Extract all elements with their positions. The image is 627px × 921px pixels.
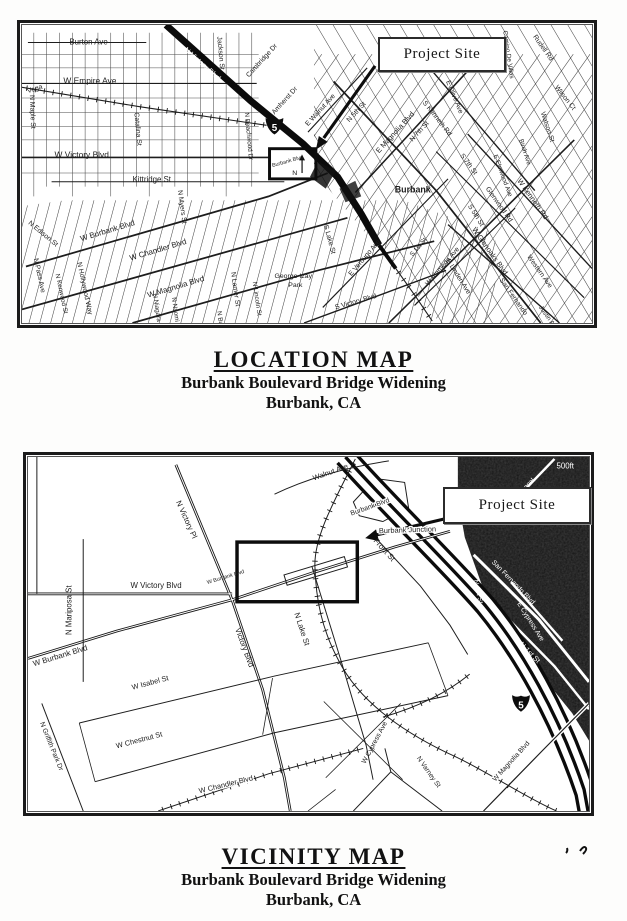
project-site-callout: Project Site: [378, 37, 506, 72]
street-label: N Edison St: [27, 220, 60, 249]
street-label: N Beachwood Dr: [243, 112, 254, 161]
street-label: E Verdugo Ave: [348, 238, 383, 277]
location-map-figure: 5NBurton AveW Empire AveW Victory BlvdKi…: [17, 20, 597, 328]
location-map-city: Burbank, CA: [0, 393, 627, 413]
street-label: W Victory Blvd: [131, 581, 182, 590]
street-label: W Magnolia Blvd: [146, 274, 205, 300]
street-labels-layer: Burton AveW Empire AveW Victory BlvdKitt…: [26, 30, 576, 323]
street-label: Watson St: [539, 111, 555, 143]
vicinity-map-figure: 5Walnut AveN Victory PlW Victory BlvdN M…: [23, 452, 594, 816]
scan-ink-mark: [560, 840, 596, 858]
location-map-subtitle: Burbank Boulevard Bridge Widening: [0, 373, 627, 393]
street-label: N Maple St: [28, 95, 36, 129]
street-label: W Chestnut St: [115, 729, 163, 750]
location-map-border: 5NBurton AveW Empire AveW Victory BlvdKi…: [21, 24, 593, 324]
street-label: N Lamer St: [229, 272, 241, 307]
location-map-title: LOCATION MAP: [0, 347, 627, 373]
vicinity-map-city: Burbank, CA: [0, 890, 627, 910]
street-label: Wilson Ct: [553, 84, 577, 111]
street-label: N Hollywood Way: [75, 262, 93, 316]
vicinity-map-border: 5Walnut AveN Victory PlW Victory BlvdN M…: [27, 456, 590, 812]
street-label: W Magnolia Blvd: [492, 740, 532, 783]
vicinity-map-title: VICINITY MAP: [0, 844, 627, 870]
street-label: S Lake St: [322, 224, 337, 254]
street-label: N Mariposa St: [64, 585, 73, 635]
vicinity-map-subtitle: Burbank Boulevard Bridge Widening: [0, 870, 627, 890]
street-label: Burton Ave: [69, 38, 107, 47]
location-map-caption: LOCATION MAP Burbank Boulevard Bridge Wi…: [0, 347, 627, 413]
location-map: 5NBurton AveW Empire AveW Victory BlvdKi…: [22, 25, 592, 323]
project-site-label: Project Site: [479, 497, 556, 514]
street-label: Burbank: [395, 185, 431, 195]
street-label: Birch Ave: [517, 138, 532, 166]
street-label: N Kenwood St: [54, 273, 69, 314]
street-label: Cambridge Dr: [245, 42, 279, 79]
street-label: N Victory Pl: [174, 499, 199, 540]
street-label: W Chandler Blvd: [198, 773, 254, 795]
street-label: N Varney St: [415, 755, 442, 789]
street-label: Kittridge St: [132, 175, 171, 184]
svg-text:N: N: [292, 170, 297, 177]
street-label: N Myers St: [176, 190, 188, 224]
street-label: W Kenneth Rd: [515, 177, 550, 221]
interstate-5-shield: 5: [518, 700, 524, 711]
street-label: Victory Blvd: [233, 627, 256, 669]
street-label: Jackson St: [215, 36, 225, 70]
project-site-label: Project Site: [404, 46, 481, 63]
street-label: S Kenneth Rd: [421, 100, 453, 138]
street-label: W Isabel St: [131, 673, 170, 691]
street-label: 500ft: [556, 462, 574, 471]
interstate-5-shield: 5: [272, 123, 278, 134]
street-label: Amherst Dr: [271, 85, 300, 116]
street-label: Western Ave: [525, 254, 553, 290]
street-label: Rudell Rd: [531, 34, 554, 63]
street-label: Front St: [372, 536, 398, 563]
street-label: N Lake St: [292, 611, 312, 647]
street-label: Vega: [26, 84, 43, 95]
project-site-callout: Project Site: [443, 487, 591, 524]
vicinity-map-caption: VICINITY MAP Burbank Boulevard Bridge Wi…: [0, 844, 627, 910]
street-label: N Pass Ave: [32, 258, 46, 294]
street-label: Catalina St: [132, 112, 142, 146]
street-label: Park: [288, 282, 303, 289]
street-label: Burbank Blvd: [271, 155, 304, 169]
street-label: S 5th St: [466, 204, 485, 228]
street-label: George Izay: [274, 273, 312, 280]
street-label: W Empire Ave: [63, 75, 116, 85]
street-label: W Victory Blvd: [55, 149, 110, 159]
